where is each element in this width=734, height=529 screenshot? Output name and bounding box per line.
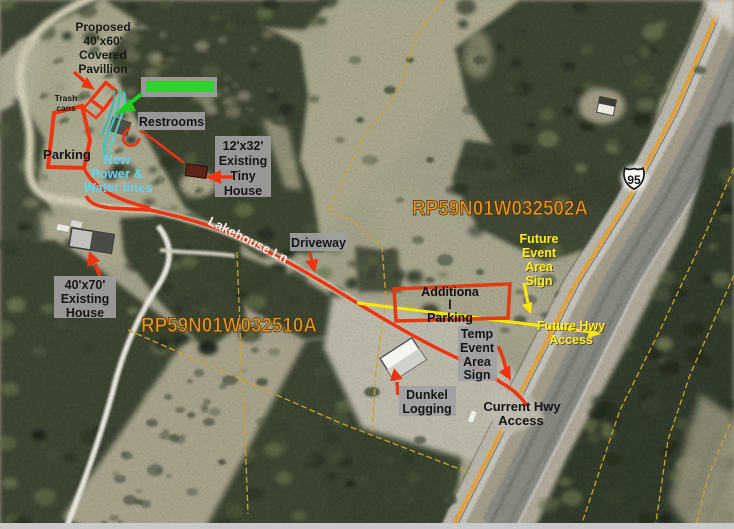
svg-text:40'x70': 40'x70' [65, 278, 106, 292]
svg-text:Area: Area [525, 260, 554, 274]
svg-text:House: House [66, 306, 104, 320]
svg-text:Parking: Parking [43, 147, 91, 162]
svg-text:Dunkel: Dunkel [406, 388, 448, 402]
svg-text:cans: cans [56, 103, 76, 113]
svg-text:Existing: Existing [219, 154, 268, 168]
svg-text:l: l [448, 298, 451, 312]
svg-text:New: New [104, 152, 132, 167]
svg-text:Parking: Parking [427, 311, 473, 325]
svg-text:Event: Event [460, 341, 495, 355]
svg-text:Current Hwy: Current Hwy [483, 399, 561, 414]
svg-text:Temp: Temp [461, 327, 494, 341]
svg-text:Power &: Power & [91, 166, 143, 181]
svg-text:House: House [224, 184, 262, 198]
svg-text:12'x32': 12'x32' [223, 139, 264, 153]
svg-text:Covered: Covered [79, 48, 127, 62]
svg-text:Additiona: Additiona [421, 285, 480, 299]
svg-text:Driveway: Driveway [291, 236, 346, 250]
svg-text:Sign: Sign [463, 368, 490, 382]
svg-text:Water lines: Water lines [84, 180, 153, 195]
svg-text:RP59N01W032502A: RP59N01W032502A [412, 197, 588, 220]
svg-text:Tiny: Tiny [230, 169, 256, 183]
svg-text:Proposed: Proposed [75, 20, 130, 34]
svg-text:Area: Area [463, 355, 492, 369]
svg-text:Existing: Existing [61, 292, 110, 306]
svg-text:Logging: Logging [402, 402, 451, 416]
svg-text:Restrooms: Restrooms [139, 115, 204, 129]
svg-text:95: 95 [627, 173, 641, 187]
svg-text:Access: Access [549, 333, 593, 347]
svg-text:40'x60': 40'x60' [83, 34, 122, 48]
svg-text:Event: Event [522, 246, 557, 260]
svg-text:Future Hwy: Future Hwy [537, 319, 605, 333]
svg-text:Access: Access [498, 413, 544, 428]
svg-text:Pavillion: Pavillion [78, 62, 127, 76]
svg-text:Future: Future [520, 232, 559, 246]
svg-text:Sign: Sign [525, 274, 552, 288]
svg-text:Trash: Trash [55, 93, 78, 103]
svg-text:RP59N01W032510A: RP59N01W032510A [141, 314, 317, 337]
